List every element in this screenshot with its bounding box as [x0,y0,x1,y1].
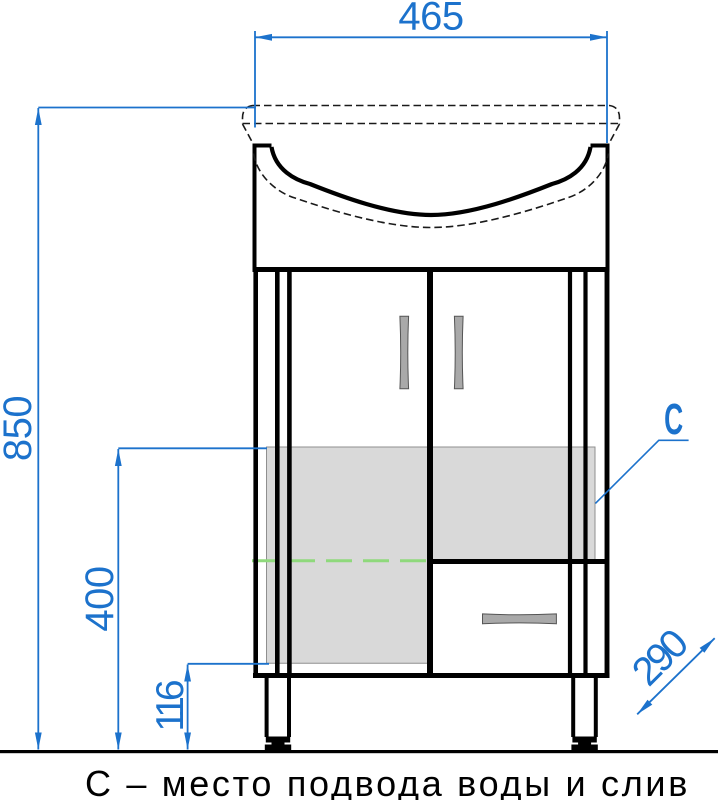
svg-text:400: 400 [78,566,122,631]
svg-text:465: 465 [398,0,463,39]
svg-text:116: 116 [149,681,192,731]
svg-text:С – место подвода воды и слив: С – место подвода воды и слив [85,763,690,800]
svg-text:850: 850 [0,396,40,461]
svg-text:С: С [664,394,683,444]
